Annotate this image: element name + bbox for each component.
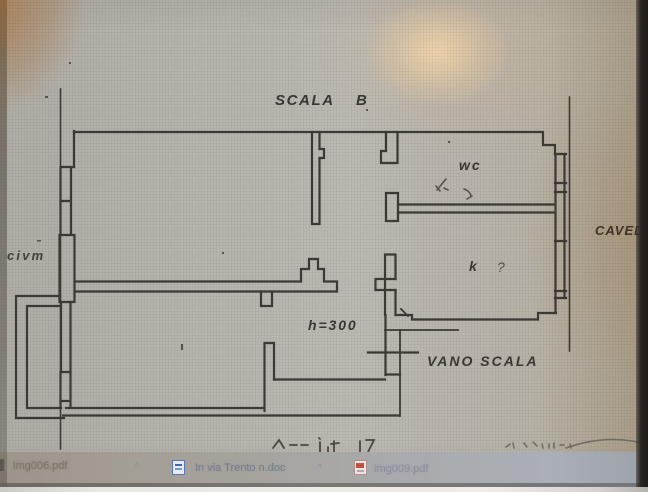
svg-text:wc: wc xyxy=(459,157,482,173)
svg-text:?: ? xyxy=(497,259,505,275)
svg-text:h=300: h=300 xyxy=(308,317,358,333)
svg-text:SCALA: SCALA xyxy=(275,92,335,109)
svg-text:VANO SCALA: VANO SCALA xyxy=(427,353,539,369)
svg-text:B: B xyxy=(356,92,367,109)
svg-text:civm: civm xyxy=(7,248,45,263)
svg-text:k: k xyxy=(469,258,478,274)
